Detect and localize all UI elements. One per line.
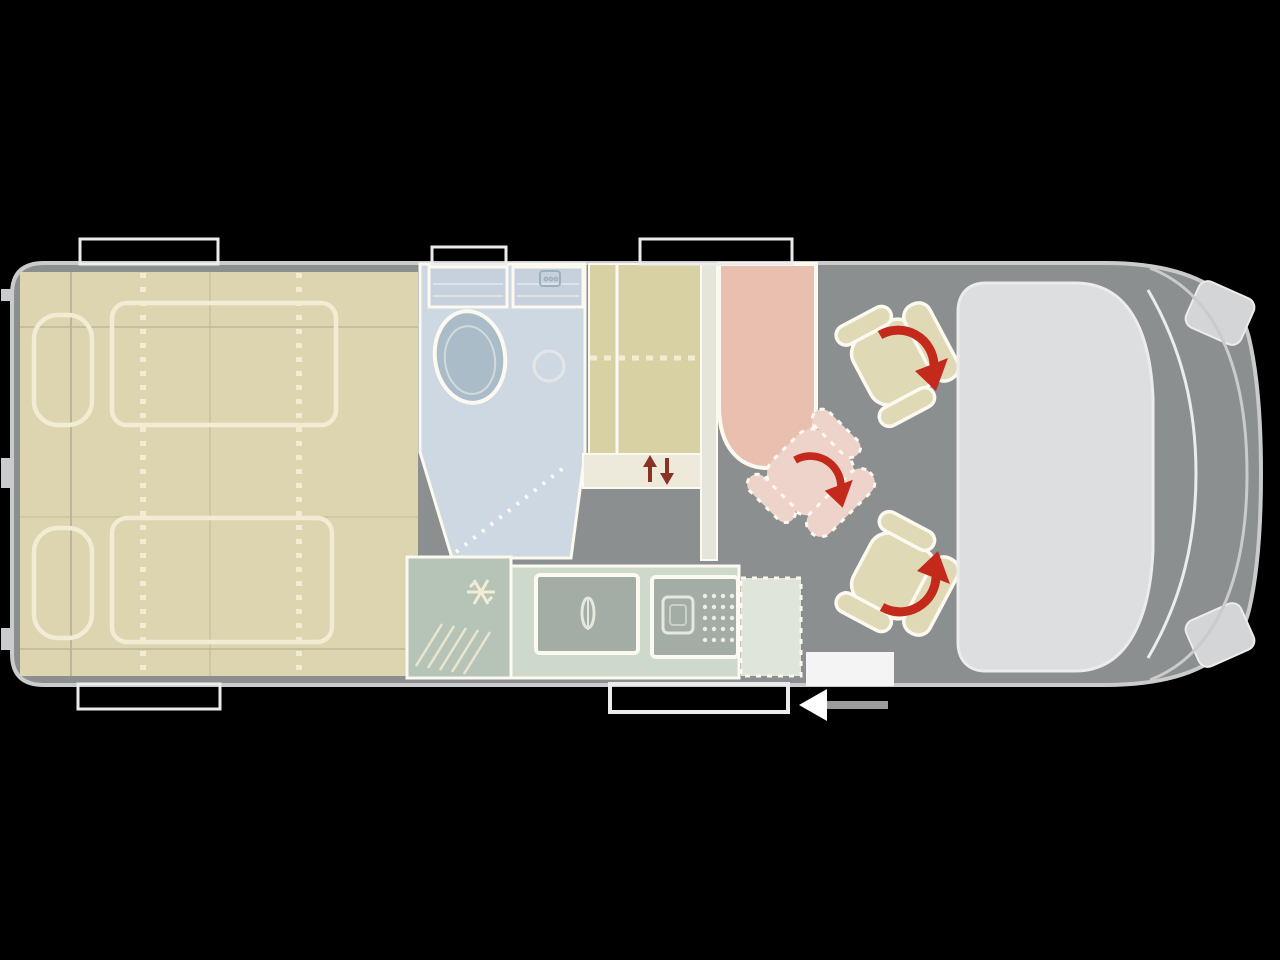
table-pad xyxy=(741,578,801,676)
entry-step xyxy=(806,652,894,686)
bathroom-shelf-left xyxy=(429,267,507,307)
entry-door-marker xyxy=(610,684,788,712)
wardrobe-step-strip xyxy=(583,454,711,488)
direction-arrow-icon xyxy=(799,689,888,721)
side-column xyxy=(701,264,717,560)
floorplan-canvas xyxy=(0,0,1280,960)
floorplan-stage xyxy=(0,0,1280,960)
bathroom xyxy=(420,264,585,558)
bed-base xyxy=(20,272,418,676)
window-marker-top-left xyxy=(80,239,218,264)
cab-dashboard xyxy=(958,283,1153,671)
window-marker-top-right xyxy=(640,239,792,264)
rear-tick-middle xyxy=(1,458,12,488)
rear-tick-top xyxy=(1,289,12,301)
stove xyxy=(652,577,738,657)
rear-bed-area xyxy=(20,272,418,676)
window-marker-bottom-left xyxy=(78,684,220,709)
rear-tick-bottom xyxy=(1,628,14,650)
